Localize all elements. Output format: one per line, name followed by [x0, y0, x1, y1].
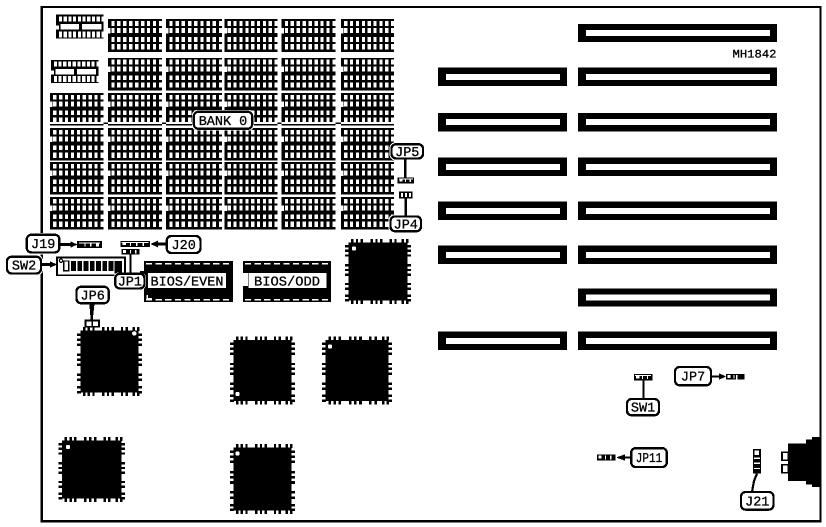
svg-text:JP7: JP7	[681, 371, 705, 386]
svg-text:MH1842: MH1842	[733, 49, 777, 62]
svg-text:J19: J19	[31, 238, 55, 253]
svg-text:SW1: SW1	[631, 402, 655, 417]
svg-text:JP11: JP11	[636, 452, 663, 467]
svg-text:J20: J20	[172, 239, 196, 254]
svg-text:BIOS/ODD: BIOS/ODD	[254, 276, 320, 291]
svg-text:JP1: JP1	[118, 276, 142, 291]
svg-text:BIOS/EVEN: BIOS/EVEN	[151, 276, 224, 291]
svg-text:SW2: SW2	[12, 260, 36, 275]
svg-text:JP4: JP4	[394, 218, 418, 233]
svg-text:JP6: JP6	[81, 290, 105, 305]
svg-text:JP5: JP5	[395, 146, 419, 161]
svg-text:BANK 0: BANK 0	[199, 115, 248, 130]
svg-text:J21: J21	[745, 495, 769, 510]
